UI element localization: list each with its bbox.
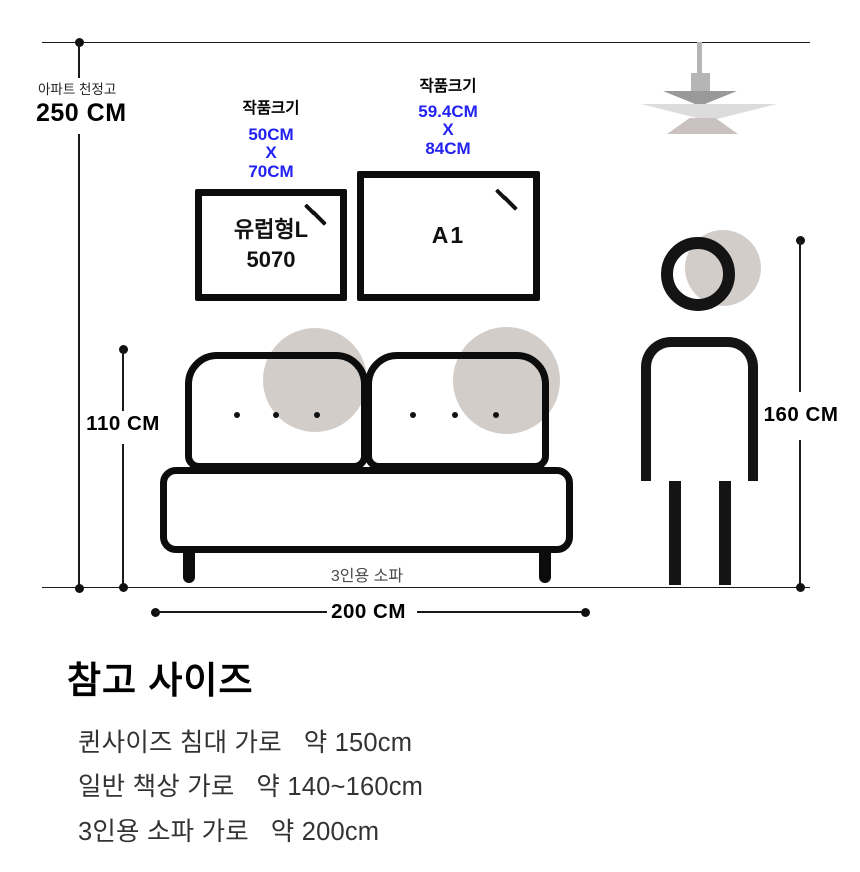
artwork1-width: 50CM [196,126,346,144]
sofa-width-line-left [155,611,327,613]
cushion-dot [452,412,458,418]
artwork1-size-values: 50CM X 70CM [196,126,346,181]
artwork1-sep: X [196,144,346,162]
reference-item-sofa: 3인용 소파 가로 약 200cm [78,811,379,848]
artwork1-label-line2: 5070 [247,245,296,275]
person-head-icon [661,237,735,311]
artwork2-frame: A1 [357,171,540,301]
sofa-cushion-right [365,352,549,470]
sofa-height-line-upper [122,349,124,411]
sofa-height-bottom-dot [119,583,128,592]
sofa-height-line-lower [122,444,124,587]
person-height-bottom-dot [796,583,805,592]
sofa-cushion-left [185,352,368,470]
person-torso-icon [641,337,758,481]
artwork1-height: 70CM [196,163,346,181]
sofa-width-line-right [417,611,585,613]
ceiling-caption: 아파트 천정고 [38,78,116,98]
ceiling-line [42,42,810,44]
lamp-shade-top-icon [663,91,737,106]
lamp-cord-icon [697,42,702,75]
sofa-height-label: 110 CM [58,412,188,436]
reference-item-desk: 일반 책상 가로 약 140~160cm [78,766,423,803]
artwork2-label: A1 [432,220,465,251]
sofa-leg-left [183,549,195,583]
artwork2-sep: X [373,121,523,139]
cushion-dot [234,412,240,418]
reference-title: 참고 사이즈 [67,650,253,704]
person-height-line-upper [799,240,801,392]
cushion-dot [273,412,279,418]
artwork1-size-title: 작품크기 [196,96,346,118]
reference-item-bed: 퀸사이즈 침대 가로 약 150cm [78,722,412,759]
sofa-width-label: 200 CM [306,600,431,624]
ceiling-dim-line-lower [78,134,80,588]
artwork1-frame: 유럽형L 5070 [195,189,347,301]
artwork1-label-line1: 유럽형L [234,215,308,245]
size-guide-diagram: 아파트 천정고 250 CM 작품크기 50CM X 70CM 유럽형L 507… [0,0,860,872]
ceiling-dim-bottom-dot [75,584,84,593]
glare-icon [306,202,332,230]
cushion-dot [410,412,416,418]
sofa-caption: 3인용 소파 [292,562,442,586]
person-height-line-lower [799,440,801,587]
artwork2-size-values: 59.4CM X 84CM [373,103,523,158]
floor-line [42,587,810,589]
artwork2-width: 59.4CM [373,103,523,121]
ceiling-dim-line-upper [78,42,80,78]
artwork2-size-title: 작품크기 [373,74,523,96]
ceiling-value: 250 CM [36,99,127,128]
person-leg-right [719,481,731,585]
person-leg-left [669,481,681,585]
sofa-leg-right [539,549,551,583]
glare-icon [497,187,523,215]
artwork2-height: 84CM [373,140,523,158]
lamp-shade-bottom-icon [667,118,738,134]
lamp-socket-icon [691,73,710,92]
cushion-dot [314,412,320,418]
sofa-seat [160,467,573,553]
person-height-label: 160 CM [740,403,860,427]
sofa-width-right-dot [581,608,590,617]
cushion-dot [493,412,499,418]
